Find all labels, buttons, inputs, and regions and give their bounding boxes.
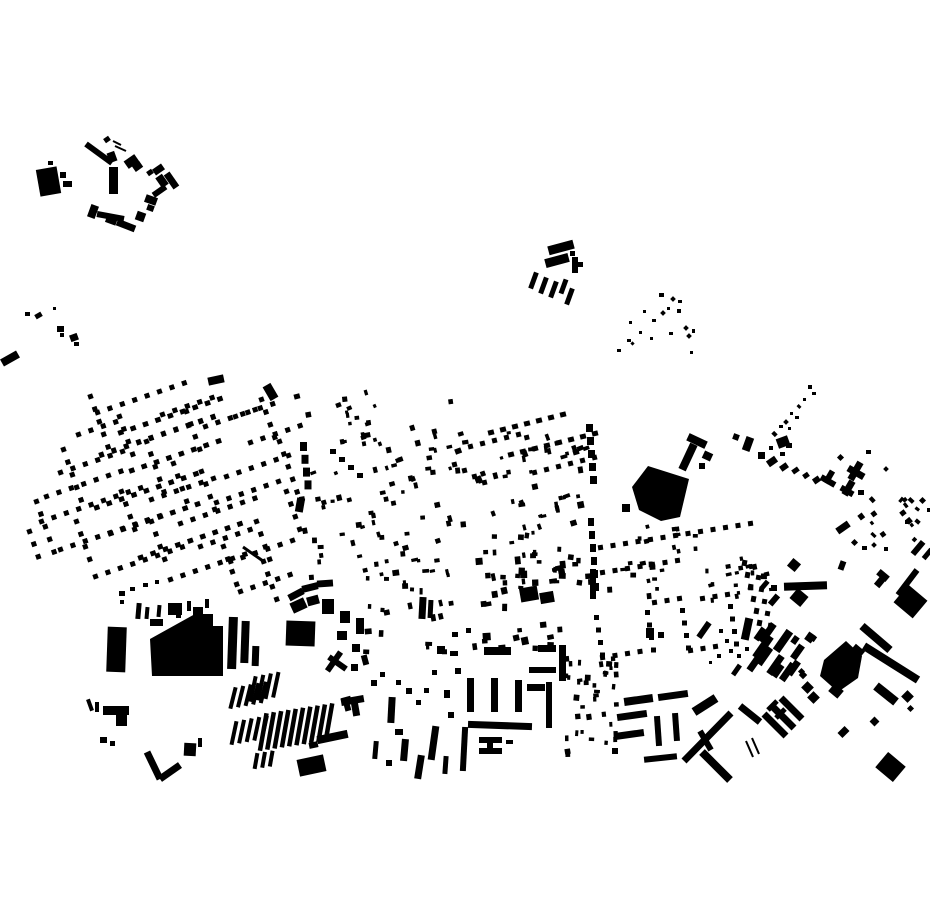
cluster-fabric-south-center — [363, 556, 566, 705]
cluster-grid-neighborhood-west — [26, 374, 303, 602]
map-canvas — [0, 0, 930, 924]
cluster-farmstead-northwest — [36, 136, 179, 229]
cluster-factory-southwest — [86, 580, 259, 779]
cluster-dense-cluster-south-center — [562, 656, 618, 757]
cluster-east-edge-buildings — [862, 569, 927, 650]
cluster-rowbars-southeast — [612, 690, 731, 763]
cluster-specks-far-east — [835, 450, 930, 560]
cluster-church-block-and-bracket — [622, 433, 713, 521]
cluster-transition-center-south — [286, 579, 385, 716]
cluster-specks-west — [2, 307, 79, 363]
figure-ground-map — [0, 0, 930, 924]
cluster-northeast-road-band — [732, 385, 864, 497]
cluster-greenhouses-southwest — [184, 672, 425, 780]
cluster-hamlet-north — [528, 240, 583, 306]
cluster-specks-northeast — [617, 293, 695, 354]
